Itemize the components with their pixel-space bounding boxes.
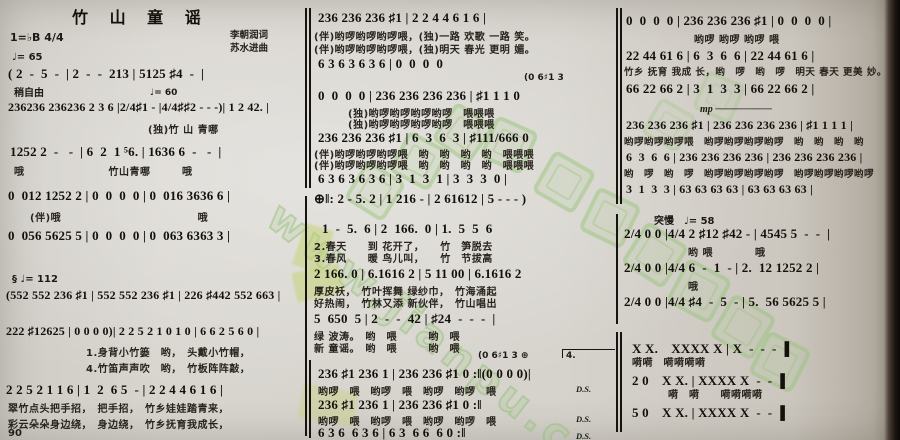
tempo-marking: 突慢 ♩= 58 (654, 212, 715, 227)
lyric-line: 新 童谣。 哟 喂 哟 喂 (314, 340, 460, 355)
score-column-middle: 236 236 236 ♯1 | 2 2 4 4 6 1 6 | (伴)哟啰哟啰… (314, 0, 614, 440)
lyric-line: 哦 竹山青哪 哦 (14, 163, 193, 178)
volta-label: 4. (566, 351, 576, 361)
system-bracket (309, 8, 311, 188)
lyric-line: 翠竹点头把手招， 把手招， 竹乡娃娃踏青来， (8, 400, 229, 415)
music-line: 1252 2 - - | 6 2 1 ⁵6. | 1636 6 - - | (10, 144, 221, 160)
pickup-notes: (0 6♯1 3 (524, 73, 564, 83)
lyric-line: 哟 啰 哟 啰 哟啰哟啰哟啰哟啰 哟啰哟啰哟啰哟啰 (624, 166, 874, 180)
lyric-line: 4.竹笛声声吹 哟， 竹板阵阵敲， (86, 360, 250, 375)
music-line: 6 3 6 6 3 6 | 6 3 6 6 6 0 :‖ (318, 425, 466, 440)
music-line: 5 0 X X. | XXXX X - - ▐ (632, 402, 785, 421)
music-line: 6 3 6 3 6 3 6 | 3 1 3 1 | 3 3 3 0 | (318, 171, 507, 187)
system-bracket (309, 360, 311, 438)
system-bracket (305, 8, 307, 188)
music-line: 236 236 236 ♯1 | 2 2 4 4 6 1 6 | (318, 10, 486, 26)
segno-tempo-marking: § ♩= 112 (12, 274, 58, 285)
music-line: 2 2 5 2 1 1 6 | 1 2 6 5 - | 2 2 4 4 6 1 … (6, 382, 223, 398)
lyric-line: 3.春风 暖 鸟儿叫， 竹 节拔高 (314, 250, 493, 265)
music-line: ⊕‖: 2 - 5. 2 | 1 216 - | 2 61612 | 5 - -… (314, 191, 526, 207)
lyric-line: 嗬嗬 嗬嗬嗬嗬 (632, 354, 706, 369)
lyric-line: 彩云朵朵身边绕， 身边绕， 竹乡抚育我成长， (8, 416, 229, 431)
sheet-music-page: www.jianpu.cn 竹 山 童 谣 1=♭B 4/4 李朝润词 苏水进曲… (0, 0, 900, 440)
ds-marking: D.S. (576, 431, 591, 440)
music-line: 2/4 0 0 |4/4 6 - 1 - | 2. 12 1252 2 | (624, 260, 819, 276)
music-line: 0 012 1252 2 | 0 0 0 0 | 0 016 3636 6 | (8, 188, 230, 204)
lyric-line: 好热闹， 竹林又添 新伙伴， 竹山唱出 (314, 295, 497, 310)
music-line: 22 44 61 6 | 6 3 6 6 | 22 44 61 6 | (626, 48, 814, 64)
music-line: 236 236 236 ♯1 | 6 3 6 3 | ♯111/666 0 (318, 130, 529, 146)
music-line: 236 ♯1 236 1 | 236 236 ♯1 0 :‖ (318, 397, 482, 413)
dynamics-marking: mp ──────── (700, 104, 772, 115)
music-line: 236 236 236 ♯1 | 236 236 236 236 | ♯1 1 … (626, 118, 853, 133)
lyric-line: (伴)哟啰哟啰哟啰喂 哟 哟 哟 哟 喂喂喂 (314, 157, 534, 172)
lyric-line: 哟啰哟啰哟啰喂 哟啰哟啰哟啰哟啰 哟 哟 哟 哟 (624, 134, 864, 148)
score-column-right: 0 0 0 0 | 236 236 236 ♯1 | 0 0 0 0 | 哟啰 … (624, 0, 886, 440)
music-line: 0 0 0 0 | 236 236 236 236 | ♯1 1 1 0 (318, 88, 520, 104)
system-bracket (616, 332, 618, 432)
score-column-left: ( 2 - 5 - | 2 - - 213 | 5125 ♯4 - | 稍自由 … (6, 0, 302, 440)
system-bracket (305, 196, 307, 436)
ds-marking: D.S. (576, 384, 591, 394)
section-marking: 稍自由 (14, 84, 44, 99)
music-line: 6 3 6 6 | 236 236 236 236 | 236 236 236 … (626, 150, 863, 165)
music-line: 236 ♯1 236 1 | 236 236 ♯1 0 :‖(0 0 0 0)| (318, 366, 531, 382)
lyric-line: 1.身背小竹篓 哟， 头戴小竹帽， (86, 344, 250, 359)
lyric-line: (伴)哟啰哟啰哟啰喂，(独)明天 春光 更明 媚。 (314, 41, 535, 56)
music-line: 2/4 0 0 |4/4 2 ♯12 ♯42 - | 4545 5 - - | (624, 226, 830, 242)
lyric-line: (独)哟啰哟啰哟啰哟啰 喂喂喂 (348, 116, 495, 131)
pickup-coda-marking: (0 6♯1 3 ⊕ (478, 351, 528, 361)
lyric-line: 哟 喂 哦 (688, 244, 765, 259)
lyric-line: 哟啰 哟啰 哟啰 喂 (694, 31, 779, 46)
music-line: 66 22 66 2 | 3 1 3 3 | 66 22 66 2 | (626, 81, 814, 97)
music-line: 0 056 5625 5 | 0 0 0 0 | 0 063 6363 3 | (8, 228, 230, 244)
ds-marking: D.S. (576, 414, 591, 424)
lyric-line: 哟啰 喂 哟啰 喂 哟啰 哟啰 喂 (318, 383, 497, 398)
music-line: 222 ♯12625 | 0 0 0 0)| 2 2 5 2 1 0 1 0 |… (6, 324, 259, 339)
music-line: 1 - 5. 6 | 2 166. 0 | 1. 5 5 6 (322, 221, 492, 237)
music-line: 236236 236236 2 3 6 |2/4♯1 - |4/4♯♯2 - -… (8, 100, 269, 115)
system-bracket (620, 332, 622, 432)
music-line: 0 0 0 0 | 236 236 236 ♯1 | 0 0 0 0 | (626, 13, 832, 29)
system-bracket (616, 8, 618, 204)
tempo-marking: ♩= 60 (150, 88, 177, 98)
music-line: 3 1 3 3 | 63 63 63 63 | 63 63 63 63 | (626, 182, 813, 197)
lyric-line: (伴)哦 哦 (30, 209, 208, 224)
music-line: 2 166. 0 | 6.1616 2 | 5 11 00 | 6.1616 2 (314, 266, 522, 282)
lyric-line: 哦 (688, 278, 699, 293)
lyric-line: 竹乡 抚育 我成 长，哟 啰 哟 啰 明天 春天 更美 妙。 (624, 64, 887, 78)
system-bracket (620, 8, 622, 204)
music-line: 6 3 6 3 6 3 6 | 0 0 0 0 (318, 56, 443, 72)
music-line: (552 552 236 ♯1 | 552 552 236 ♯1 | 226 ♯… (6, 288, 281, 303)
system-bracket (616, 214, 618, 324)
page-number: 90 (8, 428, 22, 439)
lyric-line: (独)竹 山 青哪 (148, 121, 219, 136)
music-line: 5 650 5 | 2 - - 42 | ♯24 - - - | (314, 311, 495, 327)
lyric-line: 嗬 嗬 嗬嗬嗬嗬 (668, 386, 763, 401)
music-line: 2/4 0 0 |4/4 ♯4 - 5 - | 5. 56 5625 5 | (624, 294, 826, 310)
music-line: ( 2 - 5 - | 2 - - 213 | 5125 ♯4 - | (8, 66, 204, 82)
page-edge (884, 0, 900, 440)
